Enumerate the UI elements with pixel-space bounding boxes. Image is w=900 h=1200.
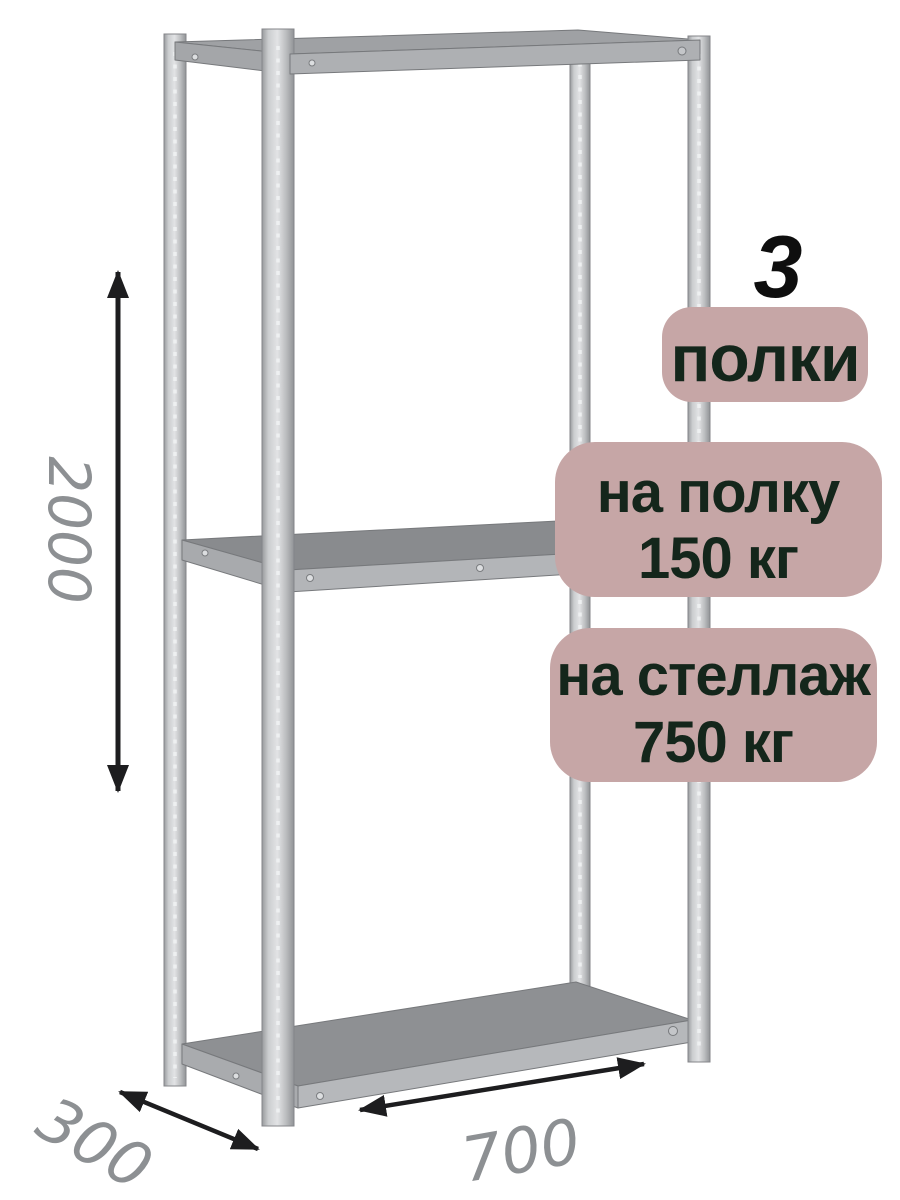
rivet bbox=[202, 550, 208, 556]
rivet bbox=[477, 565, 484, 572]
spec-badges: 3 полки на полку 150 кг на стеллаж 750 к… bbox=[550, 217, 882, 782]
rivet bbox=[192, 54, 198, 60]
shelf-count-number: 3 bbox=[754, 217, 803, 316]
rivet bbox=[307, 575, 314, 582]
width-dimension-value: 700 bbox=[456, 1104, 585, 1196]
shelf-load-badge: на полку 150 кг bbox=[555, 442, 882, 597]
depth-dimension: 300 bbox=[25, 1082, 258, 1200]
shelf-count-badge: полки bbox=[662, 307, 868, 402]
rivet bbox=[233, 1073, 239, 1079]
rack-load-line2: 750 кг bbox=[633, 710, 793, 775]
rivet bbox=[309, 60, 315, 66]
rack-load-line1: на стеллаж bbox=[556, 643, 871, 708]
shelf-load-line2: 150 кг bbox=[638, 526, 798, 591]
rivet bbox=[669, 1027, 678, 1036]
product-diagram: 2000 300 700 3 полки на полку 150 кг н bbox=[0, 0, 900, 1200]
height-dimension-value: 2000 bbox=[35, 456, 103, 604]
shelf-count-label: полки bbox=[670, 321, 859, 395]
rivet bbox=[317, 1093, 324, 1100]
rack-load-badge: на стеллаж 750 кг bbox=[550, 628, 877, 782]
height-dimension: 2000 bbox=[35, 272, 118, 791]
bottom-shelf bbox=[182, 982, 692, 1108]
shelf-load-line1: на полку bbox=[597, 460, 840, 525]
product-image-canvas: 2000 300 700 3 полки на полку 150 кг н bbox=[0, 0, 900, 1200]
rivet bbox=[678, 47, 686, 55]
